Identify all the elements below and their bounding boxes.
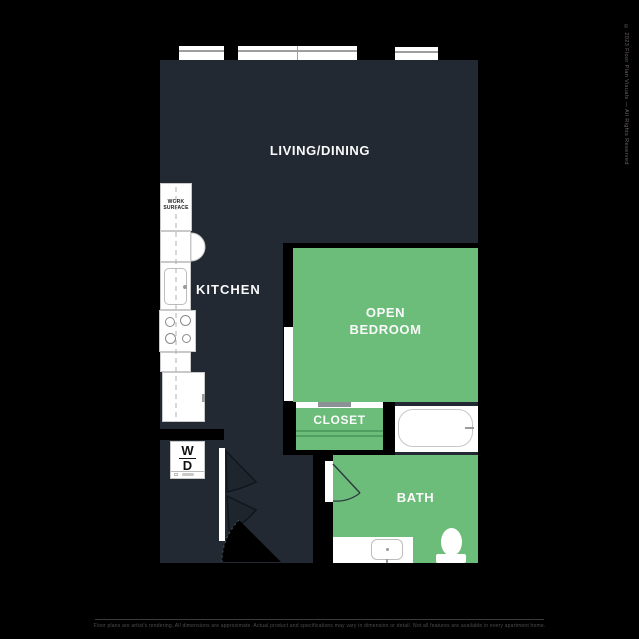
room-label-bedroom-line2: BEDROOM — [293, 321, 478, 338]
footer-divider — [95, 619, 544, 620]
window — [238, 46, 357, 60]
closet-rod — [296, 430, 383, 432]
work-surface-counter: WORK SURFACE — [160, 183, 192, 231]
sink-faucet — [386, 559, 388, 563]
room-label-kitchen: KITCHEN — [196, 281, 261, 298]
washer-label: W — [179, 444, 195, 459]
window-divider — [297, 46, 298, 60]
closet-wall-right — [383, 402, 395, 455]
room-label-closet: CLOSET — [296, 413, 383, 427]
sink-drain — [386, 548, 389, 551]
kitchen-counter-segment — [160, 231, 191, 262]
room-label-living-dining: LIVING/DINING — [220, 142, 420, 159]
watermark-vertical: © 2023 Floor Plan Visuals — All Rights R… — [623, 24, 629, 164]
bathtub-nook — [395, 406, 478, 452]
stove-burner — [165, 333, 176, 344]
window-mullion — [179, 50, 224, 52]
window — [395, 47, 438, 60]
room-label-bath: BATH — [343, 489, 488, 506]
washer-dryer-unit: W D — [170, 441, 205, 479]
floor-plan-canvas: WORK SURFACE W D LIVING/DINING KITCHEN O… — [0, 0, 639, 639]
bathtub — [398, 409, 473, 447]
toilet-tank — [436, 554, 466, 563]
work-surface-label-line2: SURFACE — [161, 205, 191, 211]
wd-knob — [174, 473, 178, 476]
window-mullion — [395, 51, 438, 53]
window — [179, 46, 224, 60]
closet-shelf-line — [296, 435, 383, 437]
bedroom-door-opening — [284, 327, 293, 401]
bathtub-faucet — [465, 427, 474, 429]
stove-burner — [182, 334, 191, 343]
room-label-bedroom-line1: OPEN — [293, 304, 478, 321]
wd-panel-line — [171, 471, 204, 472]
bath-vanity — [333, 537, 413, 563]
stove — [159, 310, 196, 352]
toilet-bowl — [441, 528, 462, 556]
wd-nook-wall — [160, 429, 224, 440]
kitchen-faucet — [183, 285, 187, 289]
refrigerator-handle — [202, 394, 205, 402]
kitchen-sink-counter — [160, 262, 191, 310]
stove-burner — [180, 315, 191, 326]
closet-sliding-door — [318, 402, 351, 407]
wd-handle — [182, 473, 194, 476]
stove-burner — [165, 317, 175, 327]
refrigerator — [162, 372, 205, 422]
kitchen-counter-segment — [160, 352, 191, 372]
bath-door-opening — [325, 461, 333, 502]
bifold-door-jamb — [219, 448, 225, 541]
closet-wall-left — [283, 402, 296, 455]
footer-disclaimer: Floor plans are artist's rendering. All … — [0, 623, 639, 629]
